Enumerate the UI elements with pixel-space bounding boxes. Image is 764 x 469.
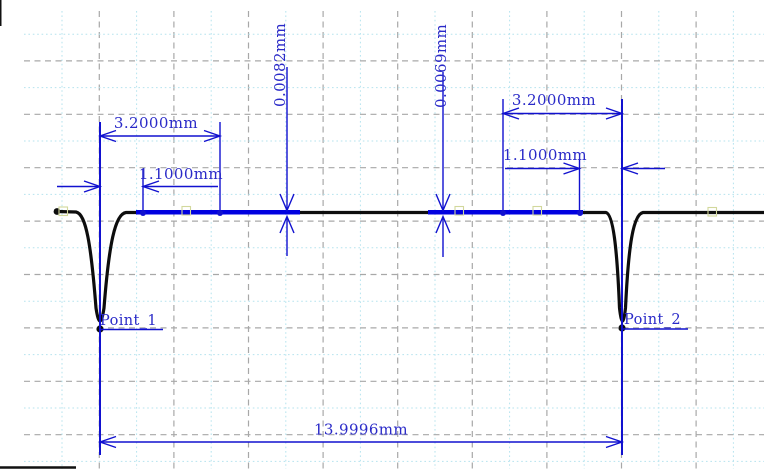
dimension-right-depth[interactable]: 0.0069mm xyxy=(432,24,450,257)
point-2-label-group[interactable]: Point_2 xyxy=(622,312,688,329)
dimension-left-offset[interactable]: 1.1000mm xyxy=(57,165,223,210)
segment-dot-left-b[interactable] xyxy=(217,210,223,216)
dimension-label: 3.2000mm xyxy=(512,91,596,109)
segment-dot-right-a[interactable] xyxy=(500,210,506,216)
dimension-label: 1.1000mm xyxy=(139,165,223,183)
segment-dot-right-b[interactable] xyxy=(577,210,583,216)
profile-plot: 3.2000mm 1.1000mm 0.0082mm 0.0069mm xyxy=(0,0,764,469)
dimension-label: 3.2000mm xyxy=(114,114,198,132)
point-label: Point_1 xyxy=(100,313,157,329)
measurement-canvas: 3.2000mm 1.1000mm 0.0082mm 0.0069mm xyxy=(0,0,764,469)
dimension-label: 0.0069mm xyxy=(432,24,450,108)
segment-dot-left-a[interactable] xyxy=(140,210,146,216)
point-label: Point_2 xyxy=(624,312,681,328)
profile-curve xyxy=(57,212,764,322)
point-1-label-group[interactable]: Point_1 xyxy=(100,313,163,330)
dimension-label: 1.1000mm xyxy=(503,146,587,164)
dimension-total-width[interactable]: 13.9996mm xyxy=(100,421,622,448)
dimension-label: 0.0082mm xyxy=(271,23,289,107)
grid xyxy=(24,11,764,469)
dimension-label: 13.9996mm xyxy=(314,421,408,439)
